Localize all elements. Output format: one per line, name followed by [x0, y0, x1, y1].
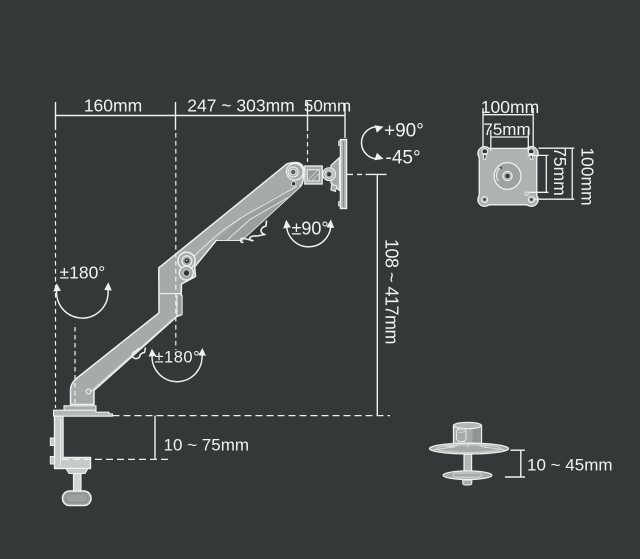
svg-text:75mm: 75mm: [550, 147, 570, 196]
svg-text:108 ~ 417mm: 108 ~ 417mm: [382, 239, 402, 344]
svg-text:100mm: 100mm: [481, 97, 539, 117]
svg-text:10 ~ 45mm: 10 ~ 45mm: [527, 456, 613, 475]
svg-text:-45°: -45°: [386, 148, 421, 169]
svg-text:±90°: ±90°: [292, 219, 329, 239]
svg-text:247 ~ 303mm: 247 ~ 303mm: [187, 96, 295, 116]
svg-text:50mm: 50mm: [304, 97, 351, 116]
svg-text:75mm: 75mm: [483, 120, 530, 139]
svg-text:10 ~ 75mm: 10 ~ 75mm: [164, 436, 250, 455]
svg-text:±180°: ±180°: [60, 263, 106, 283]
svg-text:±180°: ±180°: [155, 349, 201, 367]
svg-text:+90°: +90°: [384, 121, 424, 142]
svg-text:160mm: 160mm: [84, 96, 142, 116]
svg-text:100mm: 100mm: [578, 147, 598, 205]
